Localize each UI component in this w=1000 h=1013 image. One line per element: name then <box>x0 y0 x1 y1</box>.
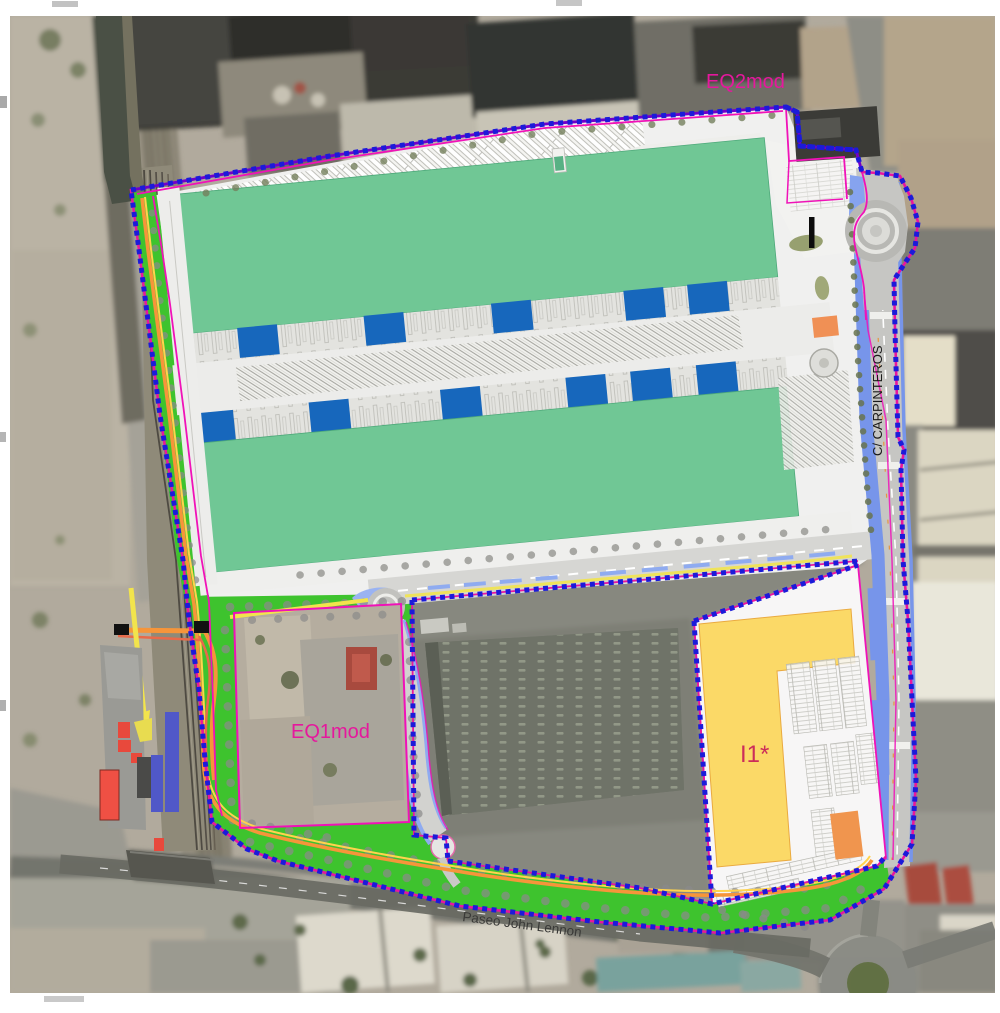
svg-text:EQ2mod: EQ2mod <box>706 71 785 93</box>
svg-text:I1*: I1* <box>740 741 769 768</box>
svg-text:EQ1mod: EQ1mod <box>291 721 370 743</box>
svg-text:C/ CARPINTEROS: C/ CARPINTEROS <box>870 345 885 456</box>
